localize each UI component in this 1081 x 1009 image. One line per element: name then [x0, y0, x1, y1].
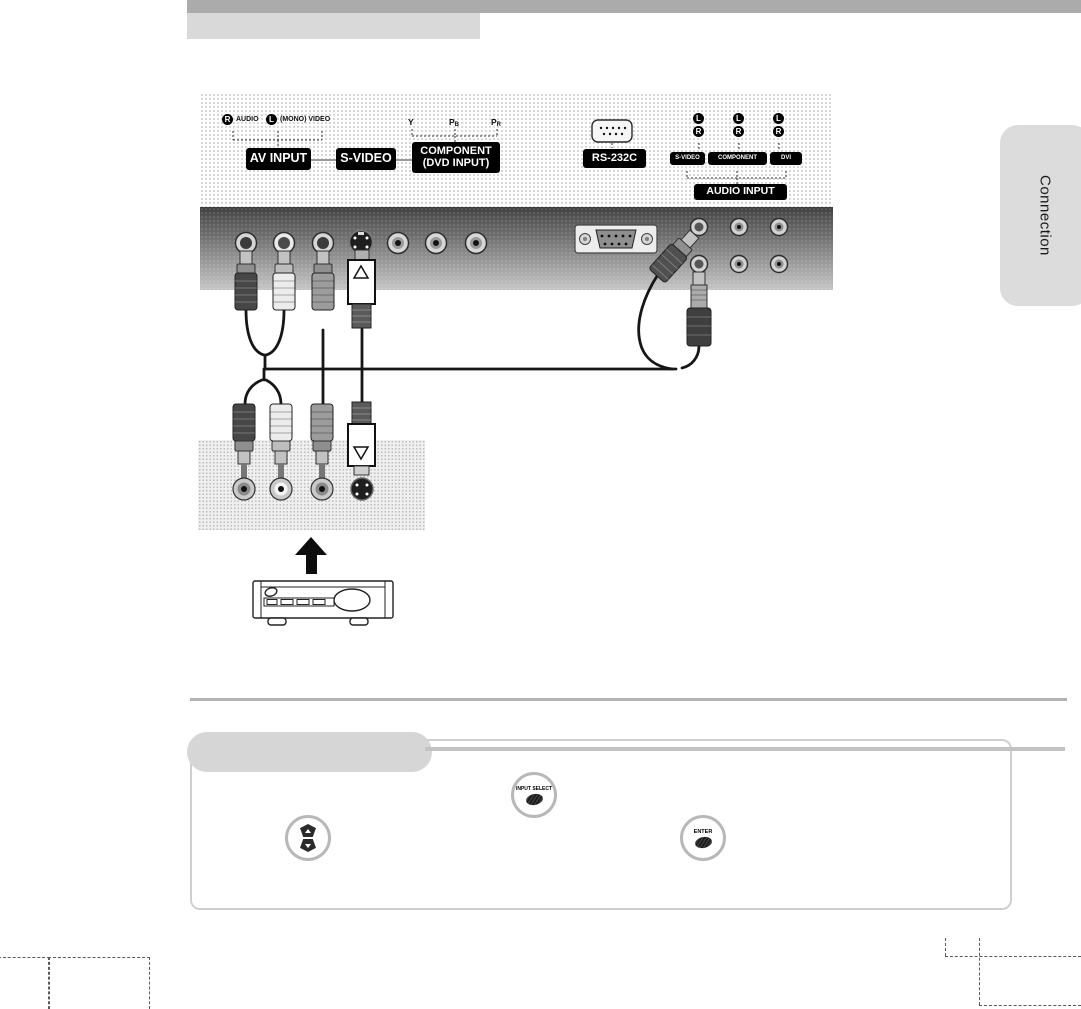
av-input-label: AV INPUT	[246, 148, 311, 170]
input-select-button: INPUT SELECT	[511, 772, 557, 818]
crop-mark	[979, 938, 980, 1005]
up-button-icon	[300, 824, 316, 837]
cables	[245, 276, 699, 404]
down-button-icon	[300, 839, 316, 852]
audio-component-label: COMPONENT	[708, 152, 767, 165]
rs232c-label: RS-232C	[583, 149, 646, 168]
connection-tab: Connection	[1000, 125, 1081, 306]
input-select-button-icon	[525, 792, 544, 806]
lr-pair-3-r: R	[773, 126, 784, 137]
audio-input-label: AUDIO INPUT	[694, 184, 787, 200]
manual-page: Connection	[0, 0, 1081, 1009]
lr-pair-1-l: L	[693, 113, 704, 124]
dvd-player-drawing	[253, 581, 393, 625]
l-mono-video-label: (MONO) VIDEO	[280, 116, 330, 123]
dvd-player-rear-panel	[198, 440, 425, 530]
instruction-title-pill	[187, 732, 432, 772]
lr-pair-3-l: L	[773, 113, 784, 124]
lr-pair-2-r: R	[733, 126, 744, 137]
footer-box-left	[0, 957, 50, 1009]
lr-pair-2-l: L	[733, 113, 744, 124]
r-audio-badge: R	[222, 114, 233, 125]
lr-pair-1-r: R	[693, 126, 704, 137]
up-arrow-icon	[295, 537, 327, 574]
audio-s-video-label: S-VIDEO	[670, 152, 705, 165]
crop-mark	[945, 956, 1081, 957]
pr-label: PR	[491, 117, 501, 128]
l-mono-badge: L	[266, 114, 277, 125]
rear-panel-strip	[200, 207, 833, 290]
s-video-label: S-VIDEO	[336, 148, 396, 170]
enter-button-icon	[694, 835, 713, 849]
input-select-button-label: INPUT SELECT	[516, 786, 552, 792]
pb-label: PB	[449, 117, 459, 128]
section-header-box	[187, 13, 480, 39]
enter-button: ENTER	[680, 815, 726, 861]
y-label: Y	[408, 117, 414, 127]
footer-box-right	[48, 957, 150, 1009]
crop-mark	[979, 1005, 1081, 1006]
audio-dvi-label: DVI	[770, 152, 802, 165]
connection-tab-label: Connection	[1037, 175, 1054, 256]
component-label: COMPONENT (DVD INPUT)	[412, 142, 500, 173]
instruction-title-rule	[425, 747, 1065, 751]
r-audio-label: AUDIO	[236, 116, 259, 123]
top-bar	[187, 0, 1081, 13]
up-down-button	[285, 815, 331, 861]
enter-button-label: ENTER	[694, 829, 713, 835]
crop-mark	[945, 938, 946, 956]
section-divider	[190, 698, 1067, 701]
